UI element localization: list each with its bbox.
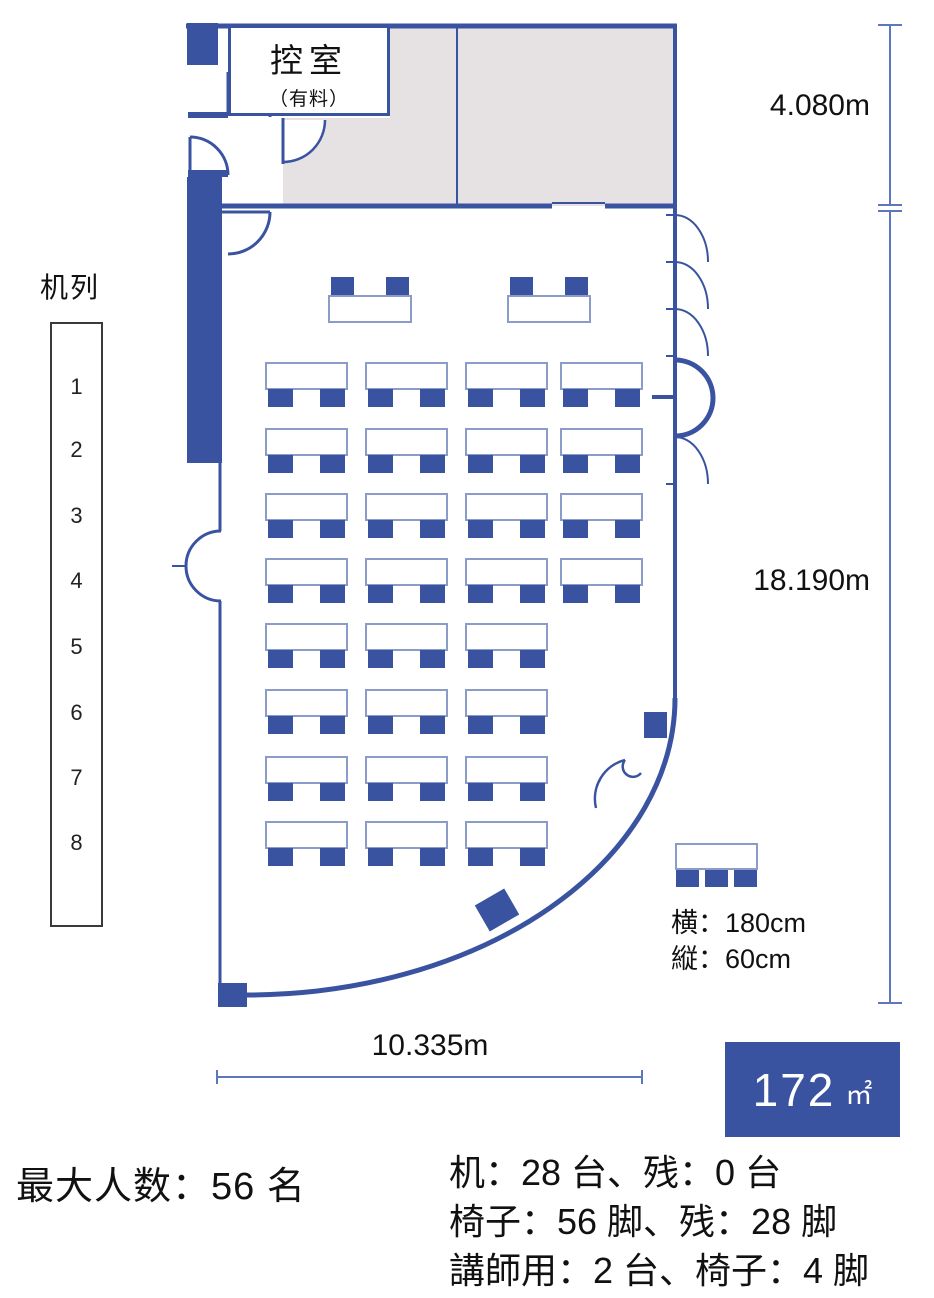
chair bbox=[268, 783, 293, 801]
chair bbox=[563, 389, 588, 407]
desk-row-number: 1 bbox=[50, 374, 103, 400]
chair bbox=[563, 455, 588, 473]
dim-label-room-width: 10.335m bbox=[330, 1029, 530, 1063]
student-desk bbox=[560, 362, 643, 390]
chair bbox=[268, 848, 293, 866]
chair bbox=[468, 783, 493, 801]
floor-plan-page: 控室 （有料） 机列 12345678 4.080m 18.190m 10.33… bbox=[0, 0, 934, 1298]
student-desk bbox=[265, 689, 348, 717]
chair bbox=[468, 389, 493, 407]
chair bbox=[520, 650, 545, 668]
chair bbox=[268, 520, 293, 538]
desk-row-number: 3 bbox=[50, 503, 103, 529]
chair bbox=[420, 716, 445, 734]
chair bbox=[420, 783, 445, 801]
chair bbox=[468, 455, 493, 473]
chair bbox=[268, 650, 293, 668]
chair bbox=[615, 389, 640, 407]
legend-desk bbox=[675, 843, 758, 870]
chair bbox=[420, 848, 445, 866]
chair bbox=[468, 848, 493, 866]
chair bbox=[320, 848, 345, 866]
inventory-block: 机：28 台、残：0 台 椅子：56 脚、残：28 脚 講師用：2 台、椅子：4… bbox=[449, 1148, 869, 1295]
student-desk bbox=[465, 689, 548, 717]
student-desk bbox=[465, 821, 548, 849]
student-desk bbox=[365, 493, 448, 521]
area-unit: ㎡ bbox=[845, 1073, 872, 1112]
desk-row-number: 7 bbox=[50, 765, 103, 791]
chair bbox=[268, 716, 293, 734]
chair bbox=[520, 783, 545, 801]
student-desk bbox=[365, 623, 448, 651]
chair bbox=[420, 650, 445, 668]
student-desk bbox=[265, 362, 348, 390]
student-desk bbox=[465, 756, 548, 784]
student-desk bbox=[560, 493, 643, 521]
student-desk bbox=[365, 689, 448, 717]
chair bbox=[420, 585, 445, 603]
chair bbox=[565, 277, 588, 295]
chair bbox=[734, 870, 757, 887]
chair bbox=[563, 585, 588, 603]
student-desk bbox=[365, 428, 448, 456]
student-desk bbox=[465, 558, 548, 586]
chair bbox=[615, 585, 640, 603]
desk-row-number: 4 bbox=[50, 568, 103, 594]
student-desk bbox=[465, 362, 548, 390]
chair bbox=[468, 520, 493, 538]
chair bbox=[615, 520, 640, 538]
student-desk bbox=[265, 558, 348, 586]
chair bbox=[520, 455, 545, 473]
student-desk bbox=[560, 428, 643, 456]
chair bbox=[320, 650, 345, 668]
chair bbox=[468, 650, 493, 668]
chair bbox=[520, 716, 545, 734]
chair bbox=[368, 783, 393, 801]
chair bbox=[320, 455, 345, 473]
inventory-line-chairs: 椅子：56 脚、残：28 脚 bbox=[449, 1197, 869, 1246]
student-desk bbox=[365, 821, 448, 849]
max-capacity-label: 最大人数：56 名 bbox=[16, 1155, 306, 1210]
chair bbox=[420, 455, 445, 473]
chair bbox=[510, 277, 533, 295]
student-desk bbox=[265, 428, 348, 456]
waiting-room-note: （有料） bbox=[231, 84, 387, 111]
chair bbox=[386, 277, 409, 295]
waiting-room-name: 控室 bbox=[231, 34, 387, 82]
chair bbox=[520, 520, 545, 538]
student-desk bbox=[465, 493, 548, 521]
student-desk bbox=[560, 558, 643, 586]
chair bbox=[520, 585, 545, 603]
chair bbox=[320, 585, 345, 603]
student-desk bbox=[365, 756, 448, 784]
area-value: 172 bbox=[753, 1063, 836, 1117]
dim-label-annex-height: 4.080m bbox=[740, 89, 870, 123]
chair bbox=[320, 783, 345, 801]
chair bbox=[368, 650, 393, 668]
chair bbox=[468, 585, 493, 603]
chair bbox=[268, 389, 293, 407]
chair bbox=[368, 848, 393, 866]
inventory-line-desks: 机：28 台、残：0 台 bbox=[449, 1148, 869, 1197]
chair bbox=[368, 716, 393, 734]
desk-row-number: 5 bbox=[50, 634, 103, 660]
chair bbox=[520, 389, 545, 407]
chair bbox=[331, 277, 354, 295]
student-desk bbox=[265, 821, 348, 849]
chair bbox=[268, 585, 293, 603]
chair bbox=[368, 455, 393, 473]
student-desk bbox=[265, 493, 348, 521]
chair bbox=[563, 520, 588, 538]
desk-row-number: 2 bbox=[50, 437, 103, 463]
chair bbox=[615, 455, 640, 473]
chair bbox=[420, 389, 445, 407]
student-desk bbox=[465, 428, 548, 456]
chair bbox=[320, 520, 345, 538]
student-desk bbox=[465, 623, 548, 651]
student-desk bbox=[365, 362, 448, 390]
chair bbox=[676, 870, 699, 887]
desk-row-number: 8 bbox=[50, 830, 103, 856]
chair bbox=[268, 455, 293, 473]
chair bbox=[368, 585, 393, 603]
student-desk bbox=[365, 558, 448, 586]
waiting-room-label-box: 控室 （有料） bbox=[228, 25, 390, 116]
chair bbox=[320, 389, 345, 407]
dim-label-room-height: 18.190m bbox=[740, 564, 870, 598]
desk-rows-title: 机列 bbox=[40, 266, 100, 306]
desk-spec-label: 横：180cm 縦：60cm bbox=[671, 905, 806, 977]
chair bbox=[320, 716, 345, 734]
student-desk bbox=[265, 756, 348, 784]
chair bbox=[368, 389, 393, 407]
desk-spec-width: 横：180cm bbox=[671, 905, 806, 941]
chair bbox=[705, 870, 728, 887]
chair bbox=[520, 848, 545, 866]
chair bbox=[368, 520, 393, 538]
chair bbox=[468, 716, 493, 734]
student-desk bbox=[265, 623, 348, 651]
desk-spec-depth: 縦：60cm bbox=[671, 941, 806, 977]
lecturer-desk bbox=[328, 295, 412, 323]
lecturer-desk bbox=[507, 295, 591, 323]
desk-row-number: 6 bbox=[50, 700, 103, 726]
chair bbox=[420, 520, 445, 538]
inventory-line-lecturer: 講師用：2 台、椅子：4 脚 bbox=[449, 1246, 869, 1295]
area-badge: 172 ㎡ bbox=[725, 1042, 900, 1137]
